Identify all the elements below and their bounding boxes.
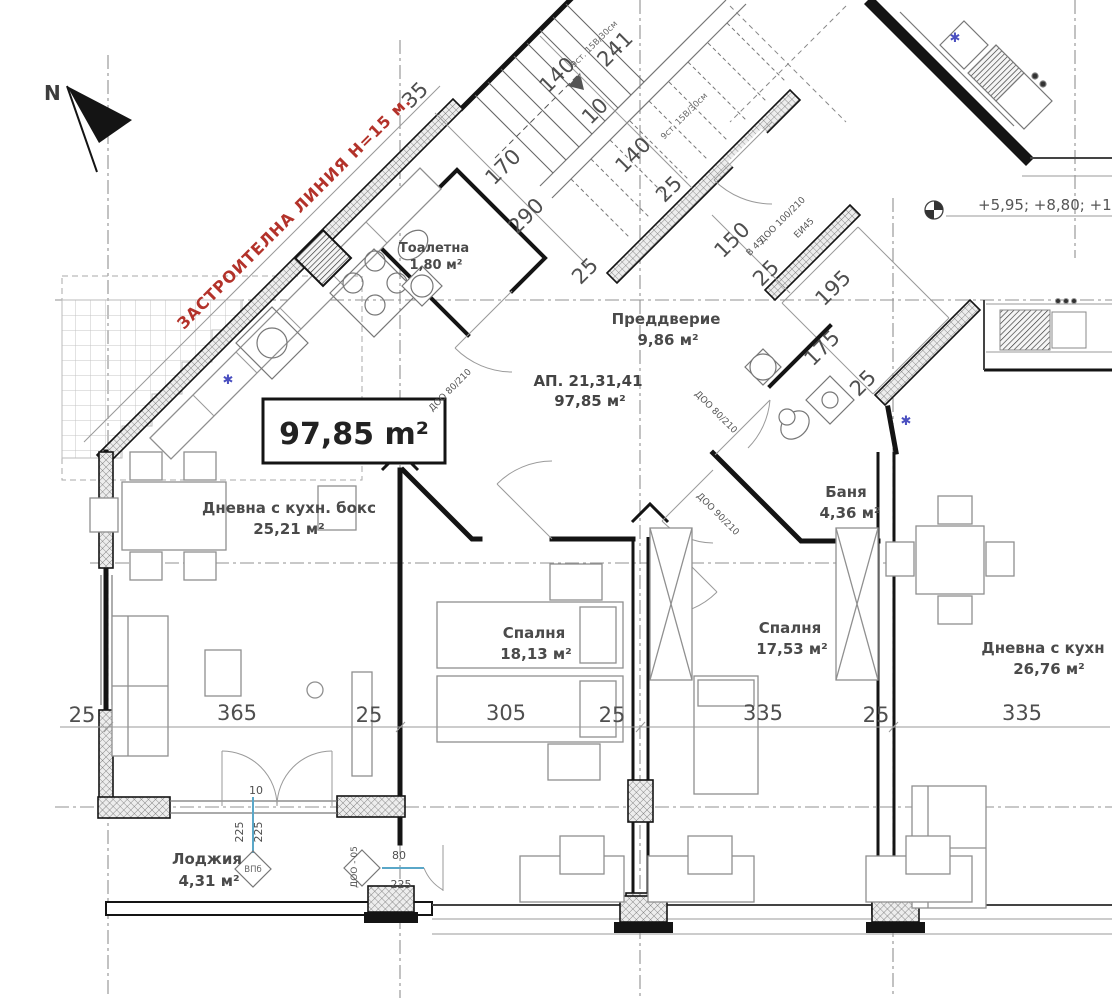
staircase [462, 0, 846, 237]
entry-name: Преддверие [612, 310, 721, 328]
dim-140-b: 140 [610, 132, 655, 177]
area-box-label: 97,85 m² [279, 417, 429, 452]
loggia-area: 4,31 м² [178, 872, 239, 890]
dim-290: 290 [503, 193, 548, 238]
loggia-door-height: 225 [391, 878, 412, 891]
fire-rating-ei45: ЕИ45 [793, 217, 817, 241]
bedroom1-name: Спалня [503, 624, 565, 642]
toilet-name: Тоалетна [399, 241, 469, 256]
asterisk-icon-2: ✱ [901, 414, 912, 429]
north-arrow-icon: N [44, 81, 132, 172]
door-label-bath: ДОО 80/210 [692, 389, 739, 436]
window-label-loggia: ВПб [244, 865, 261, 875]
dim-25-e: 25 [567, 253, 603, 289]
dim-150: 150 [709, 217, 754, 262]
floor-plan: N ЗАСТРОИТЕЛНА ЛИНИЯ Н=15 м. [0, 0, 1112, 1000]
dim-175: 175 [799, 325, 844, 370]
dim-335-b: 335 [1002, 701, 1042, 725]
floor-plan-drawing: N ЗАСТРОИТЕЛНА ЛИНИЯ Н=15 м. [0, 0, 1112, 1000]
furniture-neighbor [866, 496, 1014, 908]
shaft-wall-se [875, 300, 980, 405]
door-label-loggia: ДОО - 05 [350, 846, 360, 888]
door-label-toilet: ДОО 80/210 [427, 367, 474, 414]
bedroom2-area: 17,53 м² [756, 640, 828, 658]
building-line: ЗАСТРОИТЕЛНА ЛИНИЯ Н=15 м. [84, 86, 440, 442]
north-label: N [44, 81, 61, 105]
furniture-bedroom1 [437, 564, 624, 902]
neighbor-kitchen-top [900, 12, 1112, 176]
dim-25-c: 25 [599, 703, 626, 727]
bedroom2-name: Спалня [759, 619, 821, 637]
elevation-label: +5,95; +8,80; +1 [978, 196, 1112, 214]
dim-170: 170 [480, 144, 525, 189]
loggia-window-offset: 10 [249, 784, 263, 797]
toilet-area: 1,80 м² [410, 258, 463, 273]
dim-305: 305 [486, 701, 526, 725]
loggia-door-width: 80 [392, 849, 406, 862]
neighbor-living-name: Дневна с кухн [981, 639, 1104, 657]
area-box: 97,85 m² [263, 399, 445, 463]
dim-25-d: 25 [863, 703, 890, 727]
stair-note-2: 9ст. 15В/30см [659, 91, 710, 142]
loggia-window-w: 225 [233, 822, 246, 843]
apartment-area: 97,85 м² [554, 392, 626, 410]
dim-335-a: 335 [743, 701, 783, 725]
living-area: 25,21 м² [253, 520, 325, 538]
elevation-marker: +5,95; +8,80; +1 [925, 196, 1112, 219]
dim-25-a: 25 [69, 703, 96, 727]
door-label-bedroom2: ДОО 90/210 [694, 491, 741, 538]
neighbor-kitchen-right [984, 299, 1112, 371]
dim-195: 195 [810, 265, 855, 310]
loggia-window-h: 225 [252, 822, 265, 843]
asterisk-icon-1: ✱ [223, 373, 234, 388]
apartment-id: АП. 21,31,41 [533, 372, 642, 390]
dim-25-b: 25 [356, 703, 383, 727]
asterisk-icon-3: ✱ [950, 31, 961, 46]
loggia-name: Лоджия [172, 850, 242, 868]
stair-corridor-wall [607, 90, 800, 283]
neighbor-living-area: 26,76 м² [1013, 660, 1085, 678]
living-name: Дневна с кухн. бокс [202, 499, 376, 517]
dim-365: 365 [217, 701, 257, 725]
bath-name: Баня [825, 483, 867, 501]
bedroom1-area: 18,13 м² [500, 645, 572, 663]
bath-area: 4,36 м² [819, 504, 880, 522]
entry-area: 9,86 м² [637, 331, 698, 349]
